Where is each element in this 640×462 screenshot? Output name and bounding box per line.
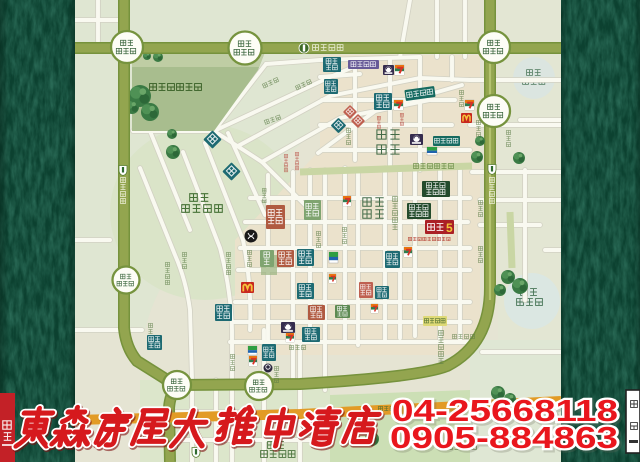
svg-text:0905-884863: 0905-884863 bbox=[390, 420, 618, 455]
svg-text:5: 5 bbox=[446, 221, 453, 235]
